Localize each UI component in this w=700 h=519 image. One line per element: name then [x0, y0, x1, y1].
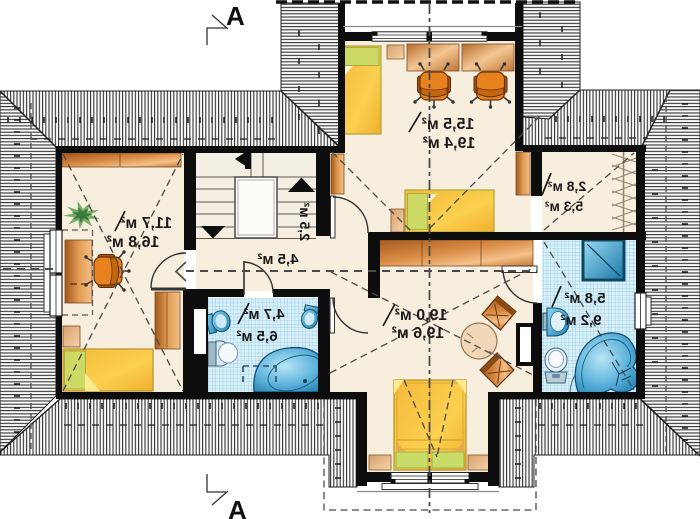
svg-text:19,6 м²: 19,6 м² [392, 325, 445, 342]
svg-text:6,5 м²: 6,5 м² [236, 328, 277, 345]
svg-text:9,2 м²: 9,2 м² [560, 312, 601, 329]
svg-text:15,5 м²: 15,5 м² [422, 116, 475, 133]
svg-text:5,3 м²: 5,3 м² [544, 198, 583, 214]
svg-text:4,7 м²: 4,7 м² [243, 306, 284, 323]
svg-text:19,0 м²: 19,0 м² [395, 307, 448, 324]
svg-text:16,8 м²: 16,8 м² [107, 234, 160, 251]
svg-text:2,5 м²: 2,5 м² [297, 202, 313, 241]
svg-text:A: A [228, 495, 247, 519]
svg-text:4,5 м²: 4,5 м² [257, 251, 298, 268]
svg-text:A: A [226, 1, 245, 31]
svg-text:2,8 м²: 2,8 м² [547, 178, 586, 194]
svg-text:11,7 м²: 11,7 м² [120, 215, 172, 232]
svg-text:19,4 м²: 19,4 м² [423, 135, 476, 152]
svg-text:5,8 м²: 5,8 м² [564, 290, 605, 307]
